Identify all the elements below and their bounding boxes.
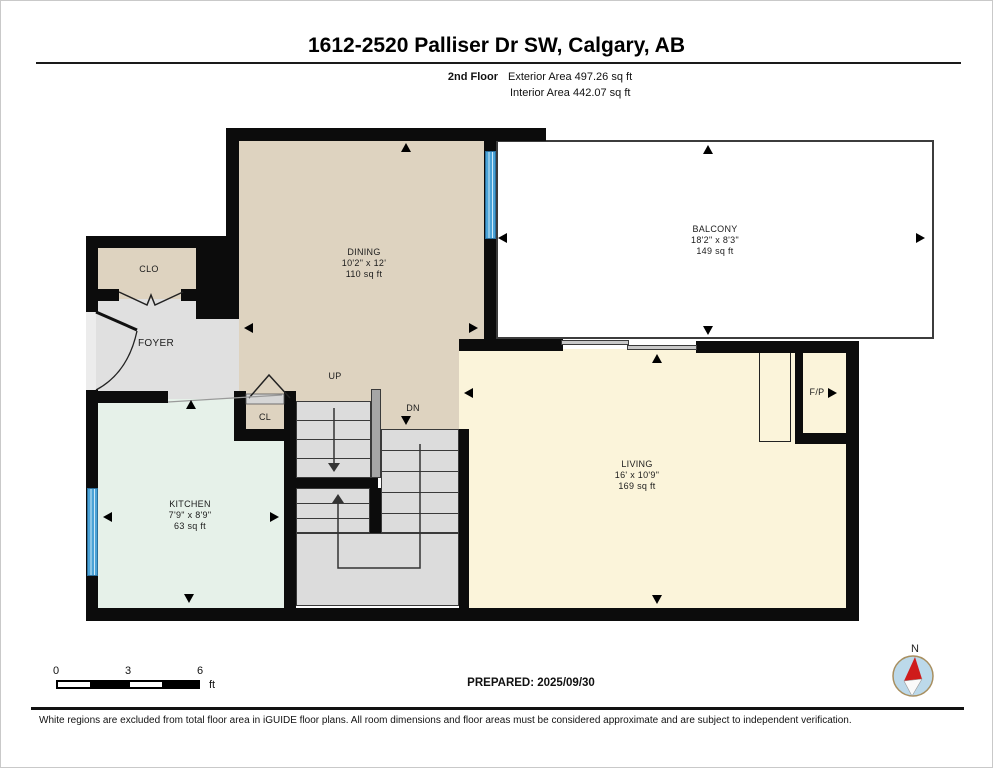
wall-fp-bottom [795, 433, 859, 444]
stair-flight-up [296, 401, 371, 478]
scale-unit-label: ft [209, 679, 215, 691]
balcony-label: BALCONY 18'2" x 8'3" 149 sq ft [645, 224, 785, 257]
wall-living-top-right [696, 341, 846, 353]
stair-mid-wall [286, 478, 378, 488]
room-area: 110 sq ft [294, 269, 434, 280]
wall-living-top-left [459, 339, 563, 351]
room-area: 149 sq ft [645, 246, 785, 257]
cl-label: CL [235, 412, 295, 423]
footer-divider [31, 707, 964, 710]
living-dim-arrow-left [464, 388, 473, 398]
stair-divider-wall [370, 488, 381, 533]
kitchen-dim-arrow-left [103, 512, 112, 522]
living-label: LIVING 16' x 10'9" 169 sq ft [567, 459, 707, 492]
wall-stairs-right [459, 429, 469, 608]
balcony-dim-arrow-left [498, 233, 507, 243]
room-area: 63 sq ft [120, 521, 260, 532]
wall-clo-stub-left [98, 289, 119, 301]
wall-cl-bottom [234, 429, 296, 441]
sliding-door-panel-2 [627, 345, 697, 350]
room-name: BALCONY [645, 224, 785, 235]
foyer-label: FOYER [116, 338, 196, 349]
stair-landing [296, 533, 459, 606]
compass-icon: N [885, 639, 945, 703]
dining-dim-arrow-right [469, 323, 478, 333]
stair-railing [371, 389, 381, 478]
wall-clo-top [86, 236, 234, 248]
stairs-up-label: UP [305, 371, 365, 382]
wall-left-upper [86, 236, 98, 313]
scale-segment-black-1 [92, 680, 128, 689]
floor-label: 2nd Floor [331, 71, 498, 83]
prepared-date: PREPARED: 2025/09/30 [401, 677, 661, 689]
wall-dining-top [226, 128, 546, 141]
disclaimer-text: White regions are excluded from total fl… [39, 715, 852, 726]
entry-door-opening [86, 312, 96, 390]
scale-tick-0: 0 [46, 665, 66, 677]
kitchen-dim-arrow-down [184, 594, 194, 603]
sliding-door-panel-1 [561, 340, 629, 345]
clo-label: CLO [109, 264, 189, 275]
wall-living-right [846, 341, 859, 621]
floorplan-page: 1612-2520 Palliser Dr SW, Calgary, AB 2n… [0, 0, 993, 768]
stair-flight-down [381, 429, 459, 533]
kitchen-label: KITCHEN 7'9" x 8'9" 63 sq ft [120, 499, 260, 532]
dining-window [485, 151, 496, 239]
wall-block-clo-right [196, 248, 239, 319]
room-dims: 18'2" x 8'3" [645, 235, 785, 246]
scale-tick-6: 6 [190, 665, 210, 677]
balcony-dim-arrow-up [703, 145, 713, 154]
dining-room-floor [239, 141, 484, 341]
balcony-dim-arrow-down [703, 326, 713, 335]
kitchen-dim-arrow-right [270, 512, 279, 522]
kitchen-dim-arrow-up [186, 400, 196, 409]
living-dim-arrow-down [652, 595, 662, 604]
compass-north-label: N [911, 643, 919, 655]
page-title: 1612-2520 Palliser Dr SW, Calgary, AB [1, 34, 992, 58]
title-divider [36, 62, 961, 64]
dining-label: DINING 10'2" x 12' 110 sq ft [294, 247, 434, 280]
living-dim-arrow-up [652, 354, 662, 363]
room-dims: 10'2" x 12' [294, 258, 434, 269]
dining-dim-arrow-up [401, 143, 411, 152]
wall-bottom-main [86, 608, 859, 621]
stair-dn-arrow [401, 416, 411, 425]
stairs-dn-label: DN [383, 403, 443, 414]
fireplace-label: F/P [787, 387, 847, 398]
room-area: 169 sq ft [567, 481, 707, 492]
room-name: LIVING [567, 459, 707, 470]
dining-dim-arrow-left [244, 323, 253, 333]
exterior-area-label: Exterior Area 497.26 sq ft [508, 71, 632, 83]
interior-area-label: Interior Area 442.07 sq ft [510, 87, 630, 99]
room-dims: 16' x 10'9" [567, 470, 707, 481]
scale-segment-black-2 [164, 680, 200, 689]
room-name: DINING [294, 247, 434, 258]
kitchen-window [87, 488, 98, 576]
room-dims: 7'9" x 8'9" [120, 510, 260, 521]
scale-segment-white-2 [128, 680, 164, 689]
wall-clo-stub-right [181, 289, 198, 301]
wall-kitchen-right [284, 391, 296, 621]
stair-flight-lower [296, 488, 370, 533]
scale-tick-3: 3 [118, 665, 138, 677]
scale-segment-white-1 [56, 680, 92, 689]
wall-kitchen-top [86, 391, 168, 403]
balcony-dim-arrow-right [916, 233, 925, 243]
room-name: KITCHEN [120, 499, 260, 510]
